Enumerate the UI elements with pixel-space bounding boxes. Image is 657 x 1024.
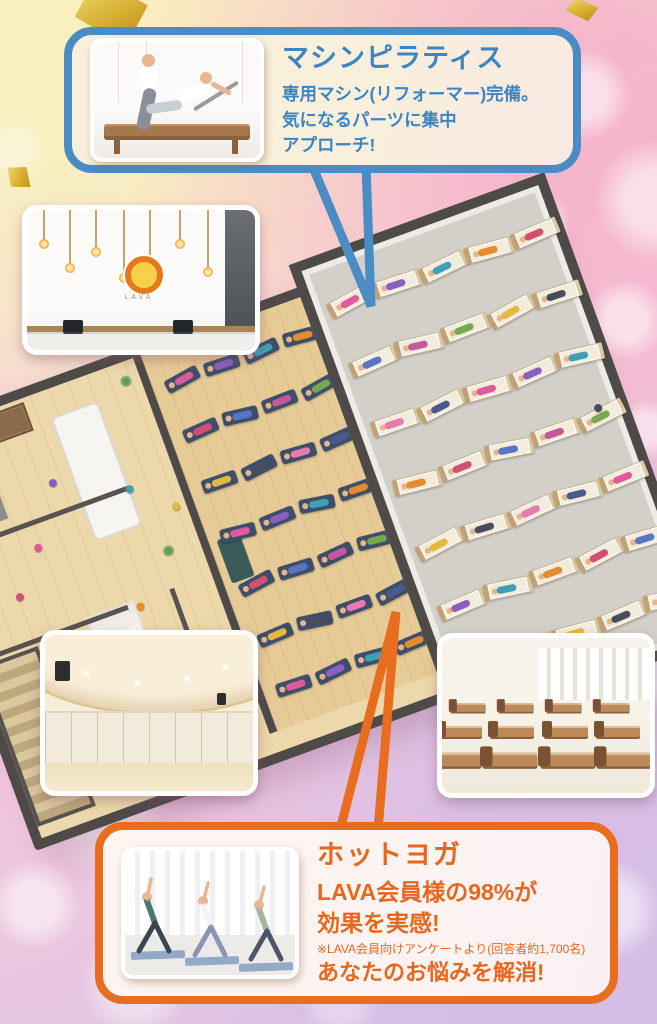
light-bulb-icon bbox=[175, 239, 185, 249]
reformer-bed-top bbox=[531, 279, 583, 310]
reformer-rail bbox=[104, 124, 250, 136]
reformer-machine bbox=[596, 726, 640, 737]
reformer-bed-top bbox=[417, 249, 468, 286]
reformer-bed-top bbox=[574, 536, 625, 574]
hotyoga-line2: 効果を実感! bbox=[317, 908, 585, 939]
reformer-box bbox=[497, 699, 505, 712]
reformer-machine bbox=[498, 703, 533, 712]
reformer-machine bbox=[541, 753, 596, 767]
monitor bbox=[63, 320, 83, 332]
person-dot bbox=[15, 592, 25, 602]
pendant-light bbox=[149, 210, 151, 256]
pilates-callout-text: マシンピラティス 専用マシン(リフォーマー)完備。 気になるパーツに集中 アプロ… bbox=[282, 41, 539, 158]
yoga-mat-top bbox=[258, 505, 297, 531]
yoga-figure bbox=[251, 887, 281, 959]
reformer-bed-top bbox=[460, 512, 512, 543]
yoga-mat-top bbox=[182, 417, 221, 444]
pendant-light bbox=[123, 210, 125, 274]
person-dot bbox=[33, 543, 43, 553]
yoga-figures bbox=[125, 851, 295, 975]
reformer-box bbox=[449, 699, 457, 712]
pilates-line2: 気になるパーツに集中 bbox=[282, 108, 539, 133]
reception-counter bbox=[50, 401, 142, 542]
pilates-title: マシンピラティス bbox=[282, 41, 539, 76]
yoga-mat-top bbox=[221, 405, 259, 427]
reformer-bed-top bbox=[463, 236, 515, 265]
reformer-box bbox=[442, 721, 446, 737]
pendant-light bbox=[207, 210, 209, 268]
pilates-line1: 専用マシン(リフォーマー)完備。 bbox=[282, 82, 539, 107]
reformer-bed-top bbox=[530, 417, 582, 449]
reformer-box bbox=[594, 721, 604, 737]
reformer-bed-top bbox=[414, 525, 465, 563]
yoga-mat-top bbox=[200, 469, 239, 494]
downlight bbox=[85, 671, 89, 675]
reformer-bed-top bbox=[528, 555, 580, 588]
hotyoga-title: ホットヨガ bbox=[317, 838, 585, 873]
yoga-mat-top bbox=[274, 673, 313, 697]
reformer-bed-top bbox=[508, 354, 560, 389]
hotyoga-photo-image bbox=[125, 851, 295, 975]
reformer-box bbox=[480, 746, 493, 766]
reformer-bed-top bbox=[482, 575, 533, 602]
reformer-machine bbox=[490, 726, 534, 737]
window-line bbox=[242, 42, 243, 102]
reformer-bed-top bbox=[347, 344, 399, 379]
person-dot bbox=[48, 478, 58, 488]
hotyoga-note: ※LAVA会員向けアンケートより(回答者約1,700名) bbox=[317, 942, 585, 958]
yoga-figure bbox=[139, 879, 169, 951]
downlight bbox=[135, 681, 139, 685]
yoga-mat-top bbox=[163, 365, 201, 395]
reformer-machine bbox=[544, 726, 588, 737]
reformer-bed-top bbox=[486, 292, 537, 331]
yoga-mat-top bbox=[353, 645, 391, 668]
reformer-bed-top bbox=[642, 586, 657, 613]
lobby-photo-image: LAVA bbox=[27, 210, 255, 350]
reformer-bed-top bbox=[393, 331, 445, 359]
reformer-machine bbox=[442, 726, 482, 737]
reformer-machine bbox=[597, 753, 651, 767]
reformer-bed-top bbox=[554, 341, 606, 369]
monitor bbox=[173, 320, 193, 332]
downlight bbox=[223, 665, 227, 669]
studio-floor bbox=[45, 763, 253, 791]
reformer-bed-top bbox=[436, 588, 488, 623]
mirror-studio-photo bbox=[40, 630, 258, 796]
reformer-bed-top bbox=[371, 268, 423, 299]
reformer-machine bbox=[594, 703, 629, 712]
window-wall bbox=[538, 648, 650, 700]
reformer-bed-top bbox=[438, 449, 490, 483]
reformer-bed-top bbox=[439, 311, 491, 344]
yoga-mat-top bbox=[261, 389, 300, 415]
light-bulb-icon bbox=[39, 239, 49, 249]
hotyoga-callout-text: ホットヨガ LAVA会員様の98%が 効果を実感! ※LAVA会員向けアンケート… bbox=[317, 838, 585, 987]
reformer-bed-top bbox=[325, 281, 376, 320]
pilates-photo-image bbox=[94, 42, 260, 158]
reformer-machine bbox=[483, 753, 538, 767]
mirror-studio-photo-image bbox=[45, 635, 253, 791]
light-bulb-icon bbox=[203, 267, 213, 277]
reformer-leg bbox=[232, 136, 238, 154]
reformer-box bbox=[488, 721, 498, 737]
reformer-leg bbox=[114, 136, 120, 154]
yoga-mat-top bbox=[219, 521, 257, 543]
pendant-light bbox=[179, 210, 181, 240]
yoga-mat-top bbox=[335, 593, 374, 618]
reformer-box bbox=[545, 699, 553, 712]
reformer-box bbox=[538, 746, 551, 766]
pilates-photo bbox=[90, 38, 264, 162]
counter-front bbox=[27, 332, 255, 350]
yoga-mat-top bbox=[279, 441, 317, 464]
lobby-photo: LAVA bbox=[22, 205, 260, 355]
window-line bbox=[118, 42, 119, 102]
reformer-bed-top bbox=[552, 480, 604, 508]
light-bulb-icon bbox=[91, 247, 101, 257]
reformer-box bbox=[593, 699, 601, 712]
reformer-room-photo-image bbox=[442, 638, 650, 793]
downlight bbox=[185, 677, 189, 681]
lava-logo-text: LAVA bbox=[113, 294, 165, 301]
person-dot bbox=[171, 501, 181, 511]
reformer-machine bbox=[450, 703, 485, 712]
hotyoga-photo bbox=[121, 847, 299, 979]
pilates-line3: アプローチ! bbox=[282, 133, 539, 158]
pilates-callout: マシンピラティス 専用マシン(リフォーマー)完備。 気になるパーツに集中 アプロ… bbox=[64, 27, 581, 173]
reformer-bed-top bbox=[509, 216, 561, 251]
hotyoga-line3: あなたのお悩みを解消! bbox=[317, 959, 585, 988]
yoga-mat-top bbox=[277, 557, 316, 581]
lava-sun-logo-icon bbox=[125, 256, 163, 294]
pendant-light bbox=[69, 210, 71, 264]
reformer-box bbox=[594, 746, 607, 766]
reformer-bed-top bbox=[484, 437, 535, 463]
pendant-light bbox=[43, 210, 45, 240]
reformer-room-photo bbox=[437, 633, 655, 798]
reformer-machine bbox=[546, 703, 581, 712]
reformer-bed-top bbox=[369, 406, 421, 438]
wall-speaker bbox=[217, 693, 226, 705]
reformer-box bbox=[542, 721, 552, 737]
yoga-mat-top bbox=[203, 353, 242, 377]
yoga-mat-top bbox=[314, 657, 352, 685]
reformer-bed-top bbox=[620, 523, 657, 554]
yoga-mat-top bbox=[240, 453, 278, 482]
member-head bbox=[200, 72, 212, 84]
instructor-head bbox=[142, 54, 155, 67]
yoga-figure bbox=[195, 883, 225, 955]
hotyoga-line1: LAVA会員様の98%が bbox=[317, 877, 585, 908]
yoga-mat-top bbox=[298, 494, 336, 515]
pendant-light bbox=[95, 210, 97, 248]
yoga-mat-top bbox=[316, 541, 355, 569]
reformer-bed-top bbox=[576, 398, 627, 435]
reformer-bed-top bbox=[462, 374, 514, 404]
yoga-mat-top bbox=[296, 610, 334, 631]
reformer-bed-top bbox=[596, 598, 648, 633]
wall-speaker bbox=[55, 661, 70, 681]
reformer-bed-top bbox=[392, 469, 444, 497]
plant bbox=[162, 544, 176, 558]
yoga-mat-top bbox=[256, 621, 295, 648]
plant bbox=[119, 374, 133, 388]
light-bulb-icon bbox=[65, 263, 75, 273]
reformer-bed-top bbox=[506, 493, 558, 529]
hotyoga-callout: ホットヨガ LAVA会員様の98%が 効果を実感! ※LAVA会員向けアンケート… bbox=[95, 822, 618, 1004]
locker-cabinet bbox=[0, 402, 34, 473]
reformer-machine bbox=[442, 753, 482, 767]
yoga-mat-top bbox=[237, 569, 275, 598]
reformer-bed-top bbox=[416, 387, 467, 424]
reformer-bed-top bbox=[598, 460, 650, 494]
mirror-wall bbox=[45, 711, 253, 765]
lava-studio-promo-flyer: LAVA bbox=[0, 0, 657, 1024]
